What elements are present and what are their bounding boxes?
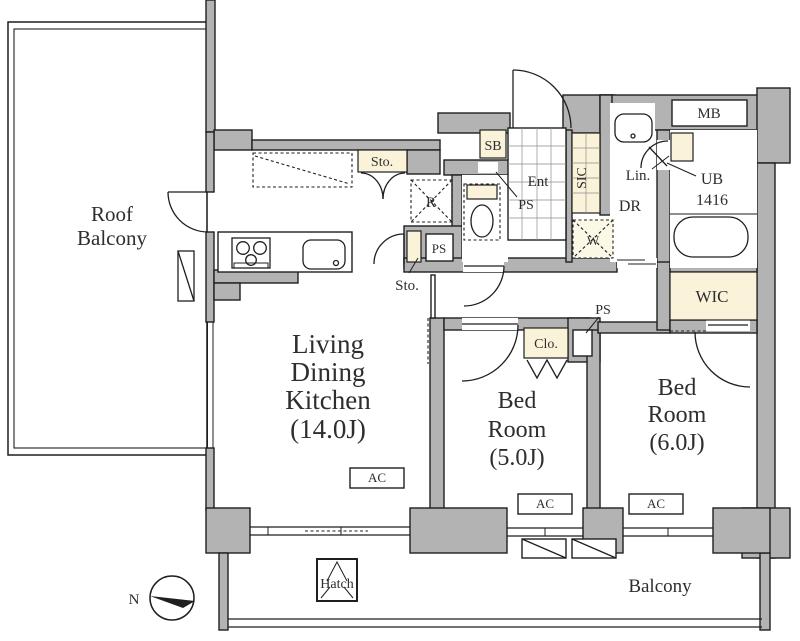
unit-bath-label: UB	[701, 171, 723, 188]
refrigerator-label: R	[426, 195, 436, 211]
washer-label: W	[587, 233, 600, 248]
balcony-label: Balcony	[628, 576, 692, 597]
unit-bath-size-label: 1416	[696, 192, 728, 209]
ac-label-bedroom5: AC	[536, 496, 554, 511]
compass	[150, 576, 195, 620]
wall-bedroom-divider	[587, 330, 600, 528]
ldk-label-line3: Kitchen	[285, 385, 371, 415]
storage-lower-label: Sto.	[395, 278, 419, 294]
bedroom5-label-line1: Bed	[498, 388, 537, 414]
hatch-label: Hatch	[320, 577, 353, 592]
closet-label: Clo.	[534, 337, 558, 352]
wall-segment	[757, 163, 775, 558]
wall-segment	[407, 150, 440, 174]
entrance-label: Ent	[528, 174, 550, 190]
north-label: N	[129, 592, 140, 608]
floor-plan: Roof Balcony Living Dining Kitchen (14.0…	[0, 0, 800, 641]
pipe-space-entrance-label: PS	[518, 198, 534, 213]
roof-balcony-label-line1: Roof	[91, 202, 133, 226]
ac-outdoor-unit	[572, 539, 616, 558]
wall-segment	[206, 232, 214, 322]
wall-segment	[214, 130, 252, 150]
wall-segment	[252, 140, 440, 150]
ac-outdoor-unit	[522, 539, 566, 558]
pipe-space-notch	[478, 162, 498, 173]
wall-toilet-top	[444, 160, 510, 175]
wall-segment	[757, 88, 790, 163]
toilet-tank	[467, 185, 497, 199]
dressing-room-label: DR	[619, 198, 642, 215]
shoe-box-label: SB	[484, 139, 501, 154]
bedroom5-size-label: (5.0J)	[489, 445, 544, 471]
wall-segment	[206, 132, 214, 192]
roof-balcony-label-line2: Balcony	[77, 226, 147, 250]
wall-bedroom5-left	[430, 318, 444, 528]
wall-segment	[214, 283, 240, 300]
walk-in-closet-label: WIC	[695, 287, 728, 306]
wall-south-block	[713, 508, 770, 553]
linen-box	[671, 133, 693, 161]
ac-label-ldk: AC	[368, 470, 386, 485]
ac-label-bedroom6: AC	[647, 496, 665, 511]
wall-segment	[219, 553, 228, 630]
linen-label: Lin.	[626, 168, 651, 184]
bedroom6-size-label: (6.0J)	[649, 430, 704, 456]
bedroom6-label-line1: Bed	[658, 375, 697, 401]
pipe-space-hall-box	[573, 330, 592, 356]
ldk-label-line2: Dining	[290, 357, 365, 387]
meter-box-label: MB	[697, 106, 720, 122]
ldk-size-label: (14.0J)	[290, 414, 366, 444]
storage-upper-label: Sto.	[371, 155, 393, 170]
wall-wic-left	[657, 262, 670, 330]
wall-segment	[206, 508, 250, 553]
storage-lower-box	[407, 231, 421, 262]
floor-plan-canvas: Roof Balcony Living Dining Kitchen (14.0…	[0, 0, 800, 641]
wall-segment	[206, 0, 215, 132]
ldk-label-line1: Living	[292, 329, 364, 359]
pipe-space-hall-label: PS	[595, 303, 611, 318]
shoe-in-closet-label: SIC	[575, 167, 590, 189]
toilet-door-opening	[463, 258, 504, 272]
wall-segment	[566, 130, 572, 262]
wall-segment	[206, 448, 214, 510]
partition-wall	[431, 275, 435, 318]
bedroom5-label-line2: Room	[488, 417, 547, 443]
pipe-space-kitchen-label: PS	[432, 241, 446, 256]
bedroom6-label-line2: Room	[648, 402, 707, 428]
wall-south-block	[410, 508, 507, 553]
bath-door-opening	[657, 140, 670, 170]
